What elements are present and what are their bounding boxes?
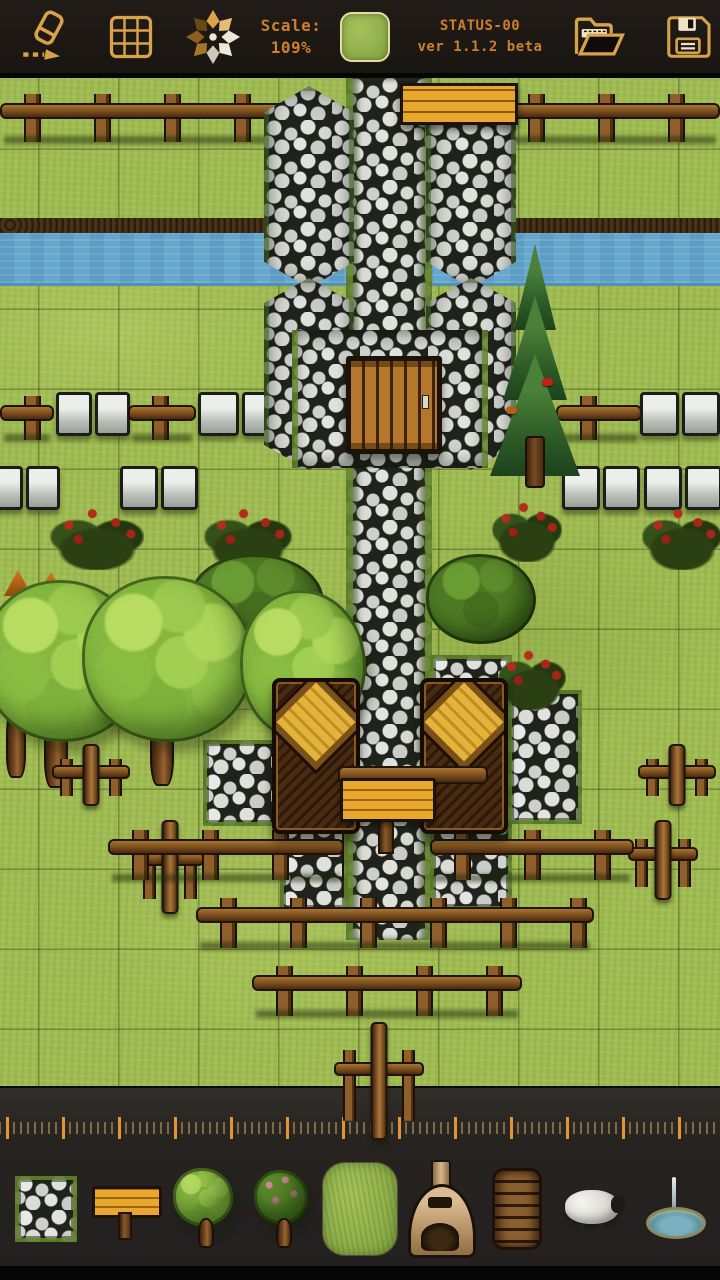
- wooden-platform: [400, 83, 518, 125]
- log-stack-icon: [492, 1168, 542, 1250]
- fence: [430, 830, 634, 880]
- fence: [196, 898, 594, 948]
- stone-blocks: [0, 466, 60, 510]
- scale-label: Scale:: [250, 15, 332, 37]
- fence: [504, 94, 720, 142]
- palette-item-fountain[interactable]: [637, 1157, 711, 1261]
- pine-tree: [490, 244, 580, 488]
- fence: [0, 396, 54, 440]
- toolbar: Scale: 109% STATUS-00 ver 1.1.2 beta: [0, 0, 720, 78]
- cross-barricade: [638, 744, 716, 806]
- bird: [506, 406, 517, 414]
- rose-bush: [492, 500, 562, 562]
- status-line1: STATUS-00: [402, 16, 558, 36]
- plaza-tile: [508, 690, 582, 824]
- cross-barricade: [628, 820, 698, 900]
- palette-item-log-stack[interactable]: [480, 1157, 554, 1261]
- rose-bush: [498, 648, 566, 710]
- open-file-button[interactable]: [568, 8, 630, 66]
- eraser-button[interactable]: [16, 8, 76, 66]
- sheep-icon: [565, 1186, 627, 1232]
- sign-icon: [92, 1182, 156, 1236]
- stone-tower: [264, 86, 354, 288]
- stone-blocks: [640, 392, 720, 436]
- bottom-black-bar: [0, 1266, 720, 1280]
- tree-icon: [171, 1166, 235, 1252]
- grid-toggle-button[interactable]: [104, 8, 158, 66]
- fence: [108, 830, 344, 880]
- tile-palette: [0, 1154, 720, 1264]
- plaza-tile: [203, 740, 282, 826]
- fence: [128, 396, 196, 440]
- map-editor-app: Scale: 109% STATUS-00 ver 1.1.2 beta: [0, 0, 720, 1280]
- cross-barricade: [52, 744, 130, 806]
- palette-item-sheep[interactable]: [559, 1157, 633, 1261]
- furnace-icon: [408, 1160, 470, 1258]
- tree-crown: [426, 554, 536, 644]
- stone-blocks: [644, 466, 720, 510]
- save-icon: [660, 9, 716, 65]
- stone-blocks: [56, 392, 130, 436]
- save-button[interactable]: [658, 8, 718, 66]
- fence: [252, 966, 522, 1016]
- palette-item-stone-path[interactable]: [9, 1157, 83, 1261]
- map-canvas[interactable]: [0, 78, 720, 1086]
- stone-path-tile-icon: [15, 1176, 77, 1242]
- palette-item-fruit-tree[interactable]: [244, 1157, 318, 1261]
- pan-button[interactable]: [184, 8, 242, 66]
- fruit-tree-icon: [249, 1166, 313, 1252]
- grass-tile-icon: [323, 1163, 397, 1255]
- cross-barricade: [334, 1022, 424, 1140]
- open-folder-icon: [569, 7, 629, 67]
- fountain-icon: [644, 1177, 704, 1241]
- palette-item-grass-selected[interactable]: [323, 1157, 397, 1261]
- eraser-icon: [18, 9, 74, 65]
- stone-blocks: [120, 466, 198, 510]
- bird: [542, 378, 553, 386]
- wooden-door: [346, 356, 442, 454]
- rose-bush: [50, 506, 144, 570]
- status-readout: STATUS-00 ver 1.1.2 beta: [402, 16, 558, 57]
- rose-bush: [642, 506, 720, 570]
- fence: [0, 94, 286, 142]
- wooden-sign: [340, 778, 436, 822]
- palette-item-sign[interactable]: [87, 1157, 161, 1261]
- palette-item-tree[interactable]: [166, 1157, 240, 1261]
- pan-star-icon: [185, 9, 241, 65]
- grid-icon: [105, 11, 157, 63]
- current-tile-preview[interactable]: [340, 12, 390, 62]
- tree-crown: [82, 576, 254, 742]
- status-line2: ver 1.1.2 beta: [402, 37, 558, 57]
- scale-value: 109%: [250, 37, 332, 59]
- palette-item-furnace[interactable]: [402, 1157, 476, 1261]
- scale-readout: Scale: 109%: [250, 15, 332, 58]
